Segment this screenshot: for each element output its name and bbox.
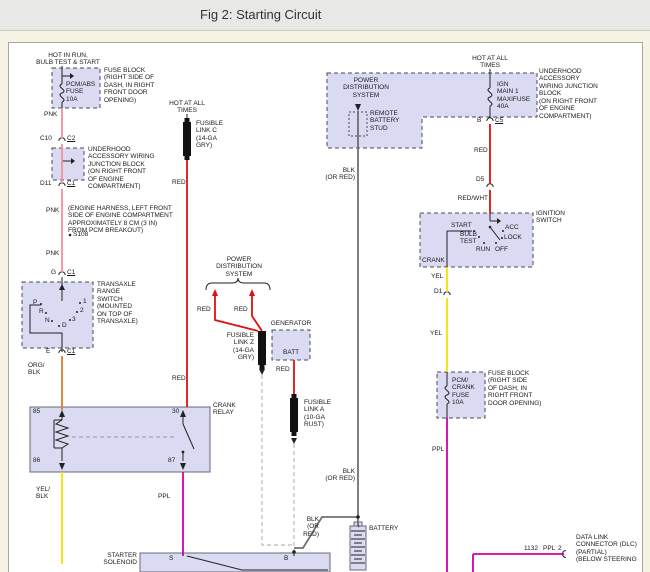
label-pin-87: 87	[168, 457, 175, 464]
label-pos-n: N	[45, 317, 50, 324]
label-blk-or-red-2: BLK (OR RED)	[321, 468, 355, 483]
label-dlc-color: PPL	[543, 545, 555, 552]
label-pos-p: P	[33, 299, 37, 306]
label-red-4: RED	[234, 306, 248, 313]
label-pnk-3: PNK	[46, 250, 59, 257]
figure-title: Fig 2: Starting Circuit	[200, 7, 321, 22]
label-d1: D1	[434, 288, 442, 295]
label-c1-a: C1	[67, 180, 75, 187]
label-pin-86: 86	[33, 457, 40, 464]
label-pnk-1: PNK	[44, 111, 57, 118]
label-ign-start: START	[451, 222, 472, 229]
label-s-terminal: S	[169, 555, 173, 562]
label-c5: C5	[495, 117, 503, 124]
label-hot-at-all-times-right: HOT AT ALL TIMES	[464, 55, 516, 70]
label-hot-at-all-times-mid: HOT AT ALL TIMES	[161, 100, 213, 115]
label-b-terminal: B	[284, 555, 288, 562]
label-starter-solenoid: STARTER SOLENOID	[99, 552, 137, 567]
label-yel-1: YEL	[431, 273, 443, 280]
label-ign-lock: LOCK	[504, 234, 522, 241]
label-c1-b: C1	[67, 269, 75, 276]
label-s108: S108	[73, 231, 88, 238]
label-ppl-1: PPL	[158, 493, 170, 500]
label-red-6: RED	[474, 147, 488, 154]
label-yel-2: YEL	[430, 330, 442, 337]
label-battery: BATTERY	[369, 525, 398, 532]
label-dlc-circuit: 1132	[524, 545, 538, 552]
label-e: E	[46, 348, 50, 355]
label-pin-85: 85	[33, 408, 40, 415]
label-c10: C10	[40, 135, 52, 142]
label-pcm-crank-fuse: PCM/ CRANK FUSE 10A	[452, 377, 475, 407]
label-pin-30: 30	[172, 408, 179, 415]
label-blk-or-red-1: BLK (OR RED)	[321, 167, 355, 182]
label-red-5: RED	[276, 366, 290, 373]
label-b-pin: B	[477, 117, 481, 124]
label-transaxle-note: TRANSAXLE RANGE SWITCH (MOUNTED ON TOP O…	[97, 281, 138, 326]
label-junction-block-right: UNDERHOOD ACCESSORY WIRING JUNCTION BLOC…	[539, 68, 598, 120]
label-batt: BATT	[283, 349, 299, 356]
label-fusible-link-z: FUSIBLE LINK Z (14-GA GRY)	[220, 332, 254, 362]
label-yel-blk: YEL/ BLK	[36, 486, 50, 501]
label-org-blk: ORG/ BLK	[28, 362, 45, 377]
label-generator: GENERATOR	[265, 320, 317, 327]
label-red-2: RED	[172, 375, 186, 382]
label-hot-in-run: HOT IN RUN, BULB TEST & START	[30, 52, 106, 67]
label-ign-main-fuse: IGN MAIN 1 MAXIFUSE 40A	[497, 81, 530, 111]
label-blk-or-red-3: BLK (OR RED)	[297, 516, 319, 538]
label-d5: D5	[476, 176, 484, 183]
label-crank: CRANK	[422, 257, 445, 264]
label-pcm-abs-fuse: PCM/ABS FUSE 10A	[66, 81, 95, 103]
label-pos-1: 1	[83, 298, 87, 305]
title-bar: Fig 2: Starting Circuit	[0, 0, 650, 31]
label-red-3: RED	[197, 306, 211, 313]
label-fuse-block-2-note: FUSE BLOCK (RIGHT SIDE OF DASH, IN RIGHT…	[488, 370, 541, 407]
label-d11: D11	[40, 180, 51, 187]
label-pos-d: D	[62, 322, 67, 329]
label-dlc-note: DATA LINK CONNECTOR (DLC) (PARTIAL) (BEL…	[576, 534, 637, 564]
label-ign-bulb-test: BULB TEST	[460, 231, 477, 246]
label-pnk-2: PNK	[46, 207, 59, 214]
label-fusible-link-c: FUSIBLE LINK C (14-GA GRY)	[196, 120, 223, 150]
label-red-1: RED	[172, 179, 186, 186]
label-ppl-2: PPL	[432, 446, 444, 453]
label-ign-acc: ACC	[505, 224, 519, 231]
label-ign-run: RUN	[476, 246, 490, 253]
label-ignition-switch: IGNITION SWITCH	[536, 210, 565, 225]
label-pos-3: 3	[72, 316, 76, 323]
label-junction-block-left: UNDERHOOD ACCESSORY WIRING JUNCTION BLOC…	[88, 146, 155, 191]
label-pos-2: 2	[80, 307, 84, 314]
label-crank-relay: CRANK RELAY	[213, 402, 236, 417]
label-battery-plus: +	[357, 524, 360, 530]
label-pos-r: R	[39, 308, 44, 315]
label-g: G	[51, 269, 56, 276]
label-remote-stud: REMOTE BATTERY STUD	[370, 110, 399, 132]
label-power-dist-mid: POWER DISTRIBUTION SYSTEM	[209, 256, 269, 278]
label-c1-c: C1	[67, 348, 75, 355]
label-fusible-link-a: FUSIBLE LINK A (10-GA RUST)	[304, 399, 331, 429]
label-fuse-block-1-note: FUSE BLOCK (RIGHT SIDE OF DASH, IN RIGHT…	[104, 67, 154, 104]
label-power-dist-top: POWER DISTRIBUTION SYSTEM	[336, 77, 396, 99]
label-dlc-pin: 2	[558, 545, 562, 552]
label-ign-off: OFF	[495, 246, 508, 253]
label-c2: C2	[67, 135, 75, 142]
label-red-wht: RED/WHT	[452, 195, 488, 202]
